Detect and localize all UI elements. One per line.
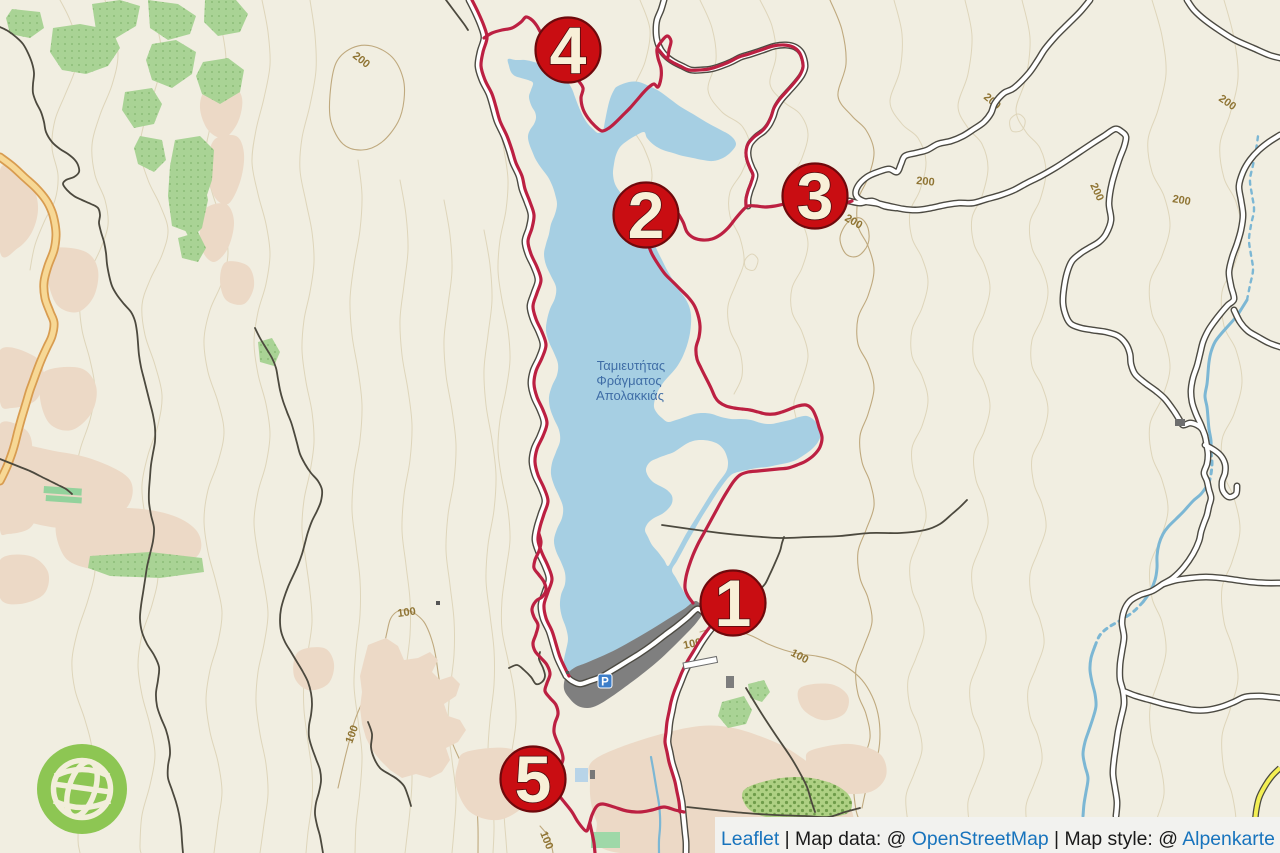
svg-text:1: 1: [715, 566, 752, 640]
svg-text:100: 100: [397, 606, 417, 620]
svg-text:200: 200: [916, 175, 935, 189]
svg-text:P: P: [601, 677, 609, 689]
svg-text:Ταμιευτήτας: Ταμιευτήτας: [597, 358, 665, 373]
svg-text:2: 2: [628, 178, 665, 252]
svg-text:4: 4: [550, 13, 587, 87]
svg-text:Απολακκιάς: Απολακκιάς: [596, 388, 664, 403]
svg-text:Leaflet | Map data: @ OpenStre: Leaflet | Map data: @ OpenStreetMap | Ma…: [721, 828, 1275, 850]
svg-text:3: 3: [797, 159, 834, 233]
svg-text:5: 5: [515, 742, 552, 816]
svg-text:Φράγματος: Φράγματος: [596, 373, 661, 388]
